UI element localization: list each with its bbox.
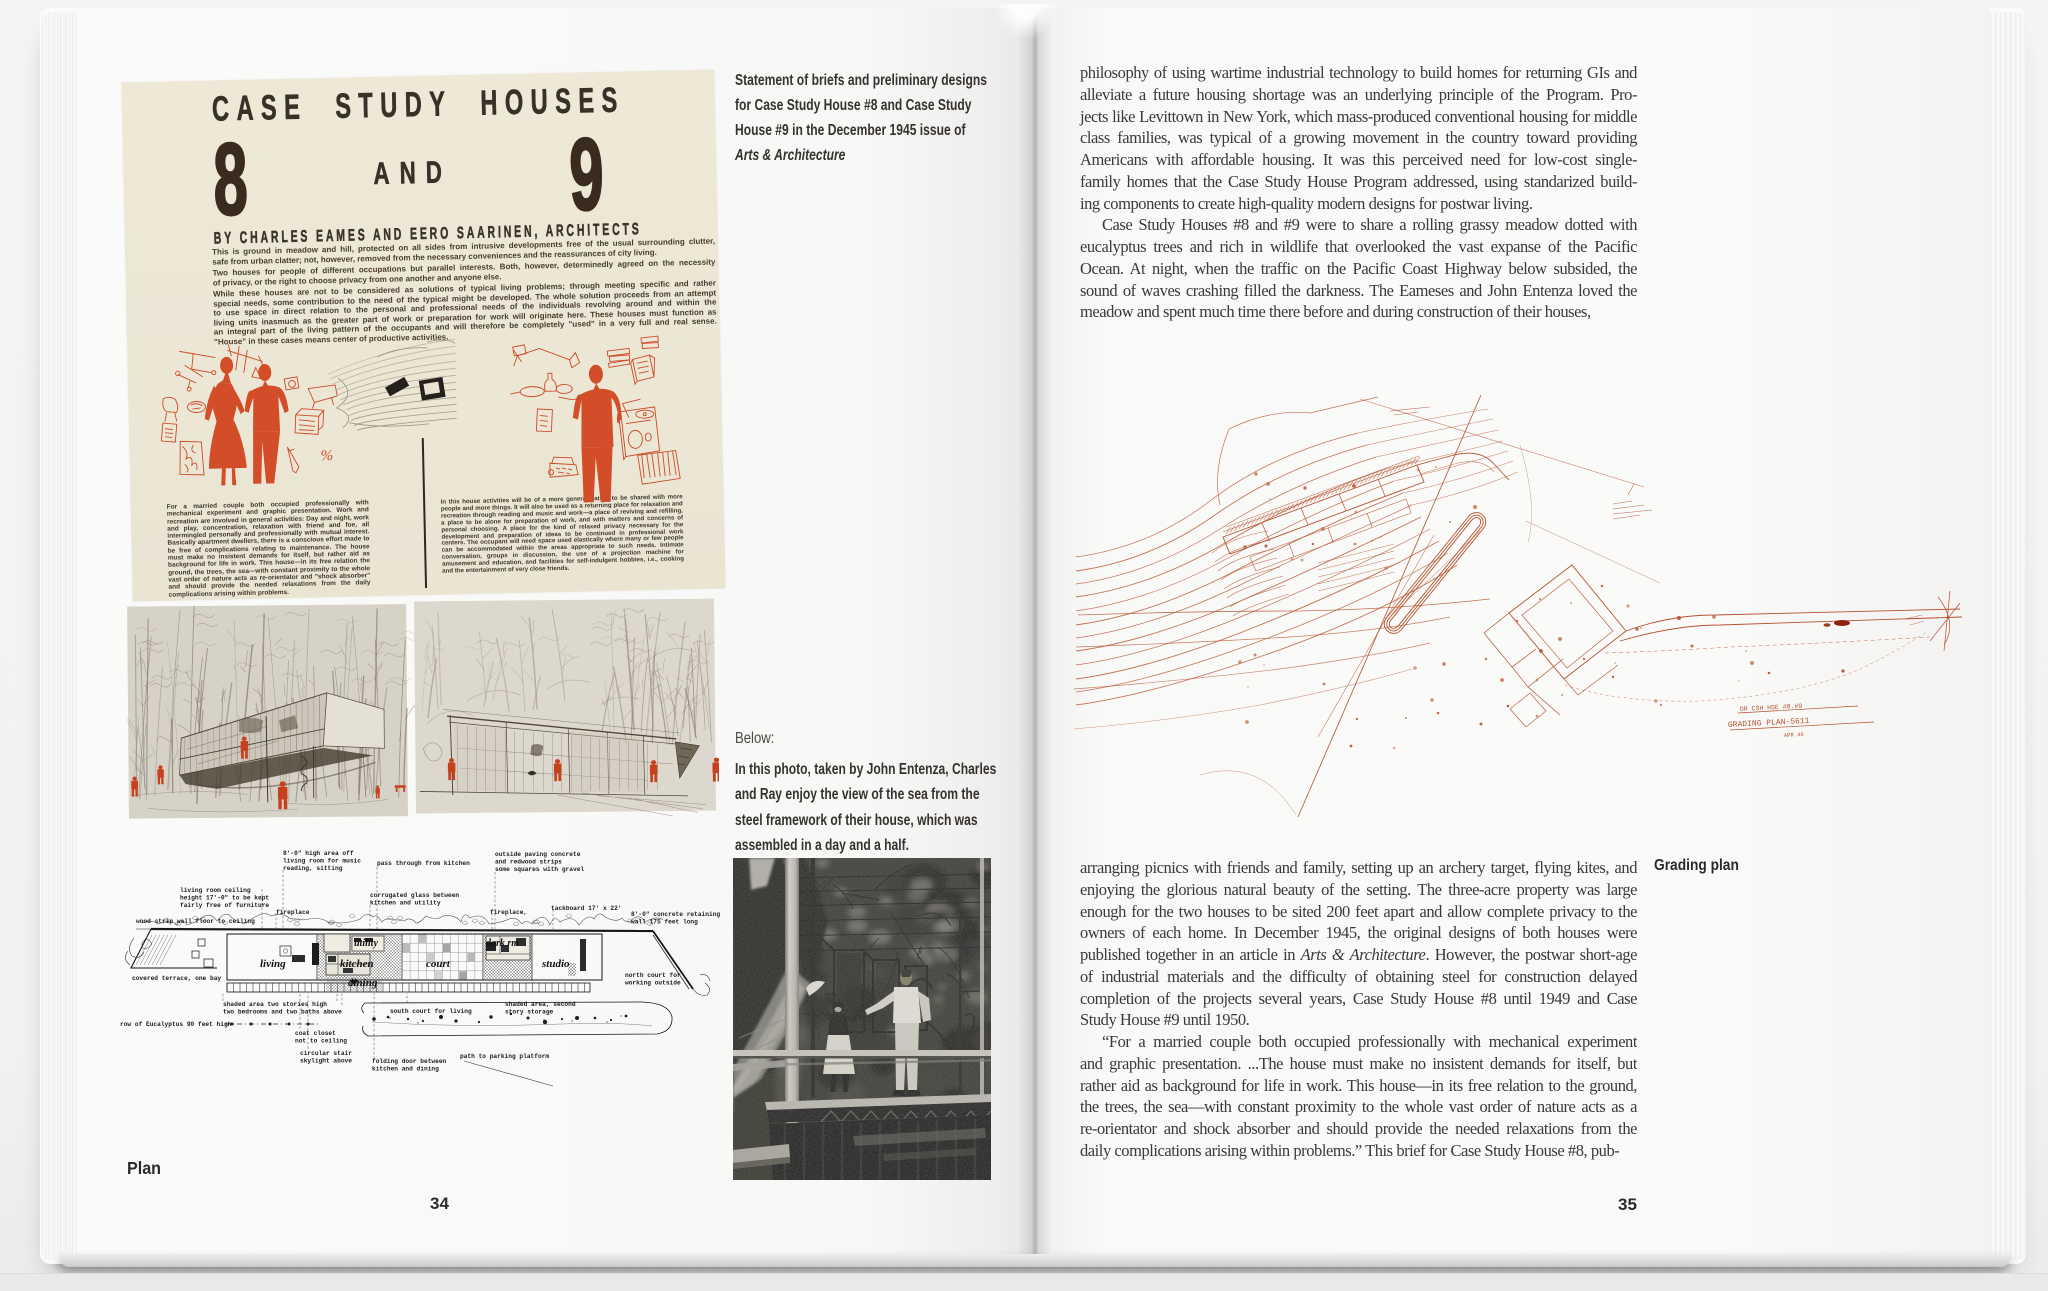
svg-text:kitchen and dining: kitchen and dining <box>372 1065 439 1072</box>
svg-text:studio: studio <box>541 958 570 970</box>
svg-text:north court for: north court for <box>625 972 681 979</box>
svg-text:8'-0" high area off: 8'-0" high area off <box>283 850 354 857</box>
svg-text:wood strip wall floor to ceili: wood strip wall floor to ceiling <box>136 918 255 925</box>
svg-text:pass through from kitchen: pass through from kitchen <box>377 860 470 867</box>
svg-text:court: court <box>426 958 451 970</box>
svg-text:shaded area, second: shaded area, second <box>505 1001 576 1008</box>
svg-text:circular stair: circular stair <box>300 1050 352 1057</box>
svg-text:row of Eucalyptus 90 feet high: row of Eucalyptus 90 feet high <box>120 1021 232 1028</box>
svg-text:covered terrace, one bay: covered terrace, one bay <box>132 975 221 982</box>
svg-text:%: % <box>320 448 333 464</box>
svg-text:wall 175 feet long: wall 175 feet long <box>631 918 698 925</box>
svg-text:skylight above: skylight above <box>300 1057 352 1064</box>
svg-text:dark rm: dark rm <box>486 938 519 949</box>
svg-text:height 17'-0" to be kept: height 17'-0" to be kept <box>180 894 269 901</box>
svg-text:dining: dining <box>348 977 378 989</box>
svg-text:kitchen: kitchen <box>340 958 374 970</box>
svg-text:fireplace,: fireplace, <box>490 909 527 916</box>
svg-text:and redwood strips: and redwood strips <box>495 858 562 865</box>
svg-text:corrugated glass between: corrugated glass between <box>370 892 459 899</box>
svg-text:south court for living: south court for living <box>390 1008 472 1015</box>
svg-text:fireplace: fireplace <box>276 909 310 916</box>
svg-text:living: living <box>260 958 286 970</box>
svg-text:not to ceiling: not to ceiling <box>295 1037 347 1044</box>
svg-text:fairly free of furniture: fairly free of furniture <box>180 902 269 909</box>
svg-text:8'-0" concrete retaining: 8'-0" concrete retaining <box>631 911 720 918</box>
svg-text:tackboard 17' x 22': tackboard 17' x 22' <box>551 905 622 912</box>
svg-text:reading, sitting: reading, sitting <box>283 865 343 872</box>
svg-text:kitchen and utility: kitchen and utility <box>370 899 441 906</box>
svg-text:some squares with gravel: some squares with gravel <box>495 866 584 873</box>
svg-text:living room ceiling: living room ceiling <box>180 887 251 894</box>
svg-text:path to parking platform: path to parking platform <box>460 1053 549 1060</box>
svg-text:utility: utility <box>354 938 378 949</box>
svg-text:two bedrooms and two baths abo: two bedrooms and two baths above <box>223 1008 342 1015</box>
svg-text:folding door between: folding door between <box>372 1058 447 1065</box>
svg-text:outside paving concrete: outside paving concrete <box>495 851 581 858</box>
svg-text:story storage: story storage <box>505 1008 554 1015</box>
svg-text:shaded area two stories high: shaded area two stories high <box>223 1001 327 1008</box>
svg-text:working outside: working outside <box>625 979 681 986</box>
svg-text:DR CSH HSE #8.#9: DR CSH HSE #8.#9 <box>1740 703 1803 713</box>
svg-text:coat closet: coat closet <box>295 1030 336 1037</box>
svg-text:living room for music: living room for music <box>283 857 361 864</box>
svg-text:APR 46: APR 46 <box>1784 731 1804 739</box>
